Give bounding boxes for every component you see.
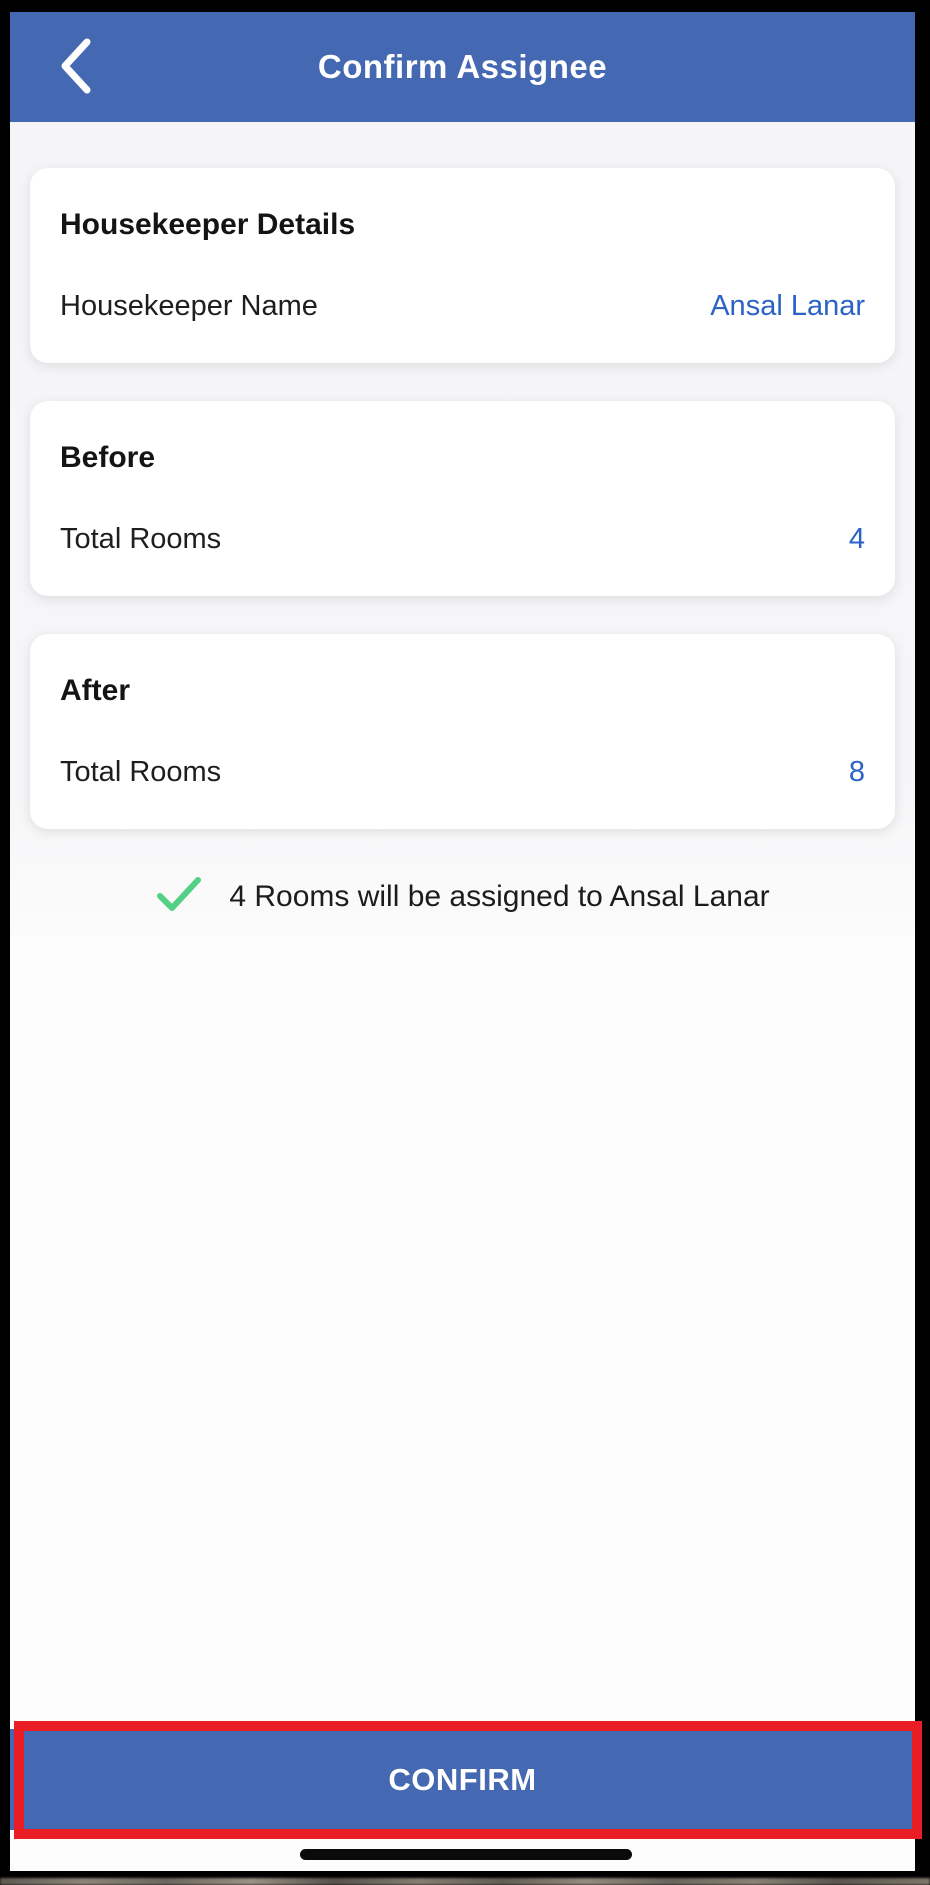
total-rooms-before-value: 4 <box>849 523 865 556</box>
content-area: Housekeeper Details Housekeeper Name Ans… <box>10 122 915 978</box>
total-rooms-before-row: Total Rooms 4 <box>60 523 865 556</box>
total-rooms-after-row: Total Rooms 8 <box>60 756 865 789</box>
phone-frame: Confirm Assignee Housekeeper Details Hou… <box>0 0 930 1885</box>
before-card: Before Total Rooms 4 <box>30 401 895 596</box>
background-edge-strip <box>0 1878 930 1885</box>
home-indicator[interactable] <box>300 1849 632 1860</box>
app-screen: Confirm Assignee Housekeeper Details Hou… <box>10 12 915 1871</box>
header-bar: Confirm Assignee <box>10 12 915 122</box>
row-label: Total Rooms <box>60 523 221 556</box>
housekeeper-details-card: Housekeeper Details Housekeeper Name Ans… <box>30 168 895 363</box>
confirmation-note-text: 4 Rooms will be assigned to Ansal Lanar <box>229 880 769 914</box>
total-rooms-after-value: 8 <box>849 756 865 789</box>
after-card: After Total Rooms 8 <box>30 634 895 829</box>
back-button[interactable] <box>40 12 110 122</box>
confirmation-note: 4 Rooms will be assigned to Ansal Lanar <box>30 875 895 918</box>
chevron-left-icon <box>57 36 93 99</box>
confirm-button[interactable]: CONFIRM <box>10 1729 915 1830</box>
card-title: After <box>60 674 865 708</box>
card-title: Before <box>60 441 865 475</box>
checkmark-icon <box>155 875 203 918</box>
card-title: Housekeeper Details <box>60 208 865 242</box>
row-label: Housekeeper Name <box>60 290 318 323</box>
housekeeper-name-value: Ansal Lanar <box>710 290 865 323</box>
page-title: Confirm Assignee <box>318 48 607 86</box>
row-label: Total Rooms <box>60 756 221 789</box>
housekeeper-name-row: Housekeeper Name Ansal Lanar <box>60 290 865 323</box>
